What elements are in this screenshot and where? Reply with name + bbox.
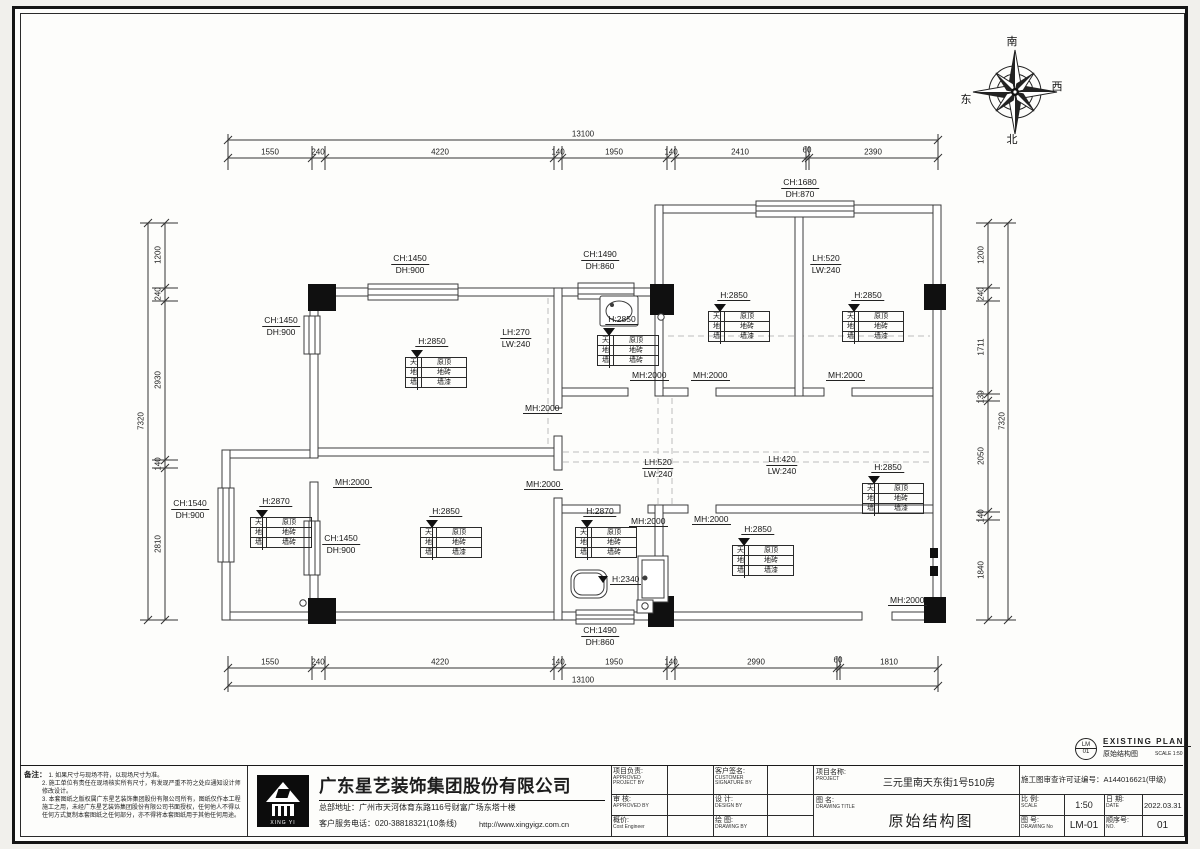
field-drawno-value: LM-01 <box>1064 815 1104 836</box>
pointer-triangle-icon <box>714 304 726 312</box>
stamp-title-en: EXISTING PLAN <box>1103 737 1191 747</box>
dimension-label: 1550 <box>261 148 279 157</box>
finish-table: 天原顶地地砖墙墙漆 <box>708 311 770 342</box>
room-height-label: H:2870 <box>583 506 616 517</box>
stamp-code-top: LM <box>1076 742 1096 749</box>
drawing-sheet: { "compass": {"south":"南","west":"西","ea… <box>0 0 1200 849</box>
field-cost-engineer: 概价: Cost Engineer <box>611 815 667 836</box>
field-date-value: 2022.03.31 <box>1142 794 1183 815</box>
existing-plan-stamp: LM 01 EXISTING PLAN 原始结构图 SCALE 1:50 <box>1075 735 1193 763</box>
field-project-manager: 项目负责: APPROVED PROJECT BY <box>611 766 667 794</box>
dimension-label: 1200 <box>154 246 163 264</box>
pointer-triangle-icon <box>848 304 860 312</box>
company-section: XING YI 广东星艺装饰集团股份有限公司 总部地址：广州市天河体育东路116… <box>247 766 611 836</box>
pointer-triangle-icon <box>581 520 593 528</box>
company-address: 总部地址：广州市天河体育东路116号财富广场东塔十楼 <box>319 802 516 813</box>
pointer-triangle-icon <box>598 576 608 583</box>
dimension-label: 240 <box>311 148 324 157</box>
room-finish-tag: H:2870天原顶地地砖墙墙砖 <box>250 517 312 548</box>
dimension-label: 1950 <box>605 148 623 157</box>
dimension-label: 1950 <box>605 658 623 667</box>
field-date-label: 日 期: DATE <box>1104 794 1142 815</box>
company-phone: 客户服务电话：020-38818321(10条线) <box>319 818 457 829</box>
door-height-label: MH:2000 <box>523 403 562 414</box>
pointer-triangle-icon <box>603 328 615 336</box>
field-drawing-title: 图 名: DRAWING TITLE 原始结构图 <box>813 794 1019 836</box>
dimension-label: 240 <box>311 658 324 667</box>
opening-size-label: LH:520LW:240 <box>810 253 841 276</box>
company-website: http://www.xingyigz.com.cn <box>479 820 569 829</box>
dimension-label: 1711 <box>977 338 986 355</box>
room-finish-tag: H:2850天原顶地地砖墙墙漆 <box>405 357 467 388</box>
plan-annotations: 1310015502404220140195014024106023901550… <box>0 0 1200 849</box>
dimension-label: 140 <box>551 658 564 667</box>
opening-size-label: CH:1490DH:860 <box>581 249 619 272</box>
room-height-label: H:2870 <box>259 496 292 507</box>
field-seq-label: 顺序号: NO. <box>1104 815 1142 836</box>
finish-table: 天原顶地地砖墙墙砖 <box>575 527 637 558</box>
dimension-label: 140 <box>154 457 163 470</box>
opening-size-label: CH:1450DH:900 <box>391 253 429 276</box>
field-drawing-by: 绘 图: DRAWING BY <box>713 815 767 836</box>
opening-size-label: CH:1450DH:900 <box>322 533 360 556</box>
room-finish-tag: H:2850天原顶地地砖墙墙漆 <box>732 545 794 576</box>
note-line-3: 3. 本套图纸之版权属广东星艺装饰集团股份有限公司所有，图纸仅作本工程施工之用，… <box>24 796 243 820</box>
room-height-label: H:2850 <box>605 314 638 325</box>
field-license: 施工图审查许可证编号：A144016621(甲级) <box>1019 766 1183 794</box>
opening-size-label: CH:1450DH:900 <box>262 315 300 338</box>
door-height-label: MH:2000 <box>333 477 372 488</box>
dimension-label: 4220 <box>431 658 449 667</box>
finish-table: 天原顶地地砖墙墙漆 <box>420 527 482 558</box>
dimension-label: 1840 <box>977 561 986 579</box>
note-line-2: 2. 施工单位有责任在现场核实所有尺寸，有发现严重不符之处应通知设计师修改设计。 <box>24 780 243 796</box>
opening-size-label: LH:420LW:240 <box>766 454 797 477</box>
door-height-label: MH:2000 <box>692 514 731 525</box>
dimension-label: 13100 <box>572 676 594 685</box>
room-finish-tag: H:2850天原顶地地砖墙墙漆 <box>862 483 924 514</box>
height-label: H:2340 <box>610 574 641 585</box>
room-height-label: H:2850 <box>741 524 774 535</box>
dimension-label: 1550 <box>261 658 279 667</box>
room-finish-tag: H:2850天原顶地地砖墙墙漆 <box>420 527 482 558</box>
dimension-label: 2050 <box>977 447 986 465</box>
opening-size-label: LH:520LW:240 <box>642 457 673 480</box>
field-drawno-label: 图 号: DRAWING No <box>1019 815 1064 836</box>
opening-size-label: CH:1490DH:860 <box>581 625 619 648</box>
finish-table: 天原顶地地砖墙墙漆 <box>732 545 794 576</box>
dimension-label: 4220 <box>431 148 449 157</box>
room-height-label: H:2850 <box>717 290 750 301</box>
dimension-label: 2810 <box>154 535 163 553</box>
dimension-label: 140 <box>551 148 564 157</box>
pointer-triangle-icon <box>256 510 268 518</box>
room-height-label: H:2850 <box>415 336 448 347</box>
field-checked-by: 审 核: APPROVED BY <box>611 794 667 815</box>
dimension-label: 240 <box>977 287 986 300</box>
dimension-label: 60 <box>803 146 812 155</box>
title-block: 备注： 1. 如果尺寸与现场不符，以现场尺寸为准。 2. 施工单位有责任在现场核… <box>20 765 1183 836</box>
room-finish-tag: H:2870天原顶地地砖墙墙砖 <box>575 527 637 558</box>
finish-table: 天原顶地地砖墙墙砖 <box>250 517 312 548</box>
dimension-label: 2930 <box>154 371 163 389</box>
opening-size-label: CH:1680DH:870 <box>781 177 819 200</box>
field-seq-value: 01 <box>1142 815 1183 836</box>
dimension-label: 140 <box>664 148 677 157</box>
field-project-name: 项目名称: PROJECT 三元里南天东街1号510房 <box>813 766 1019 794</box>
dimension-label: 140 <box>977 509 986 522</box>
dimension-label: 2990 <box>747 658 765 667</box>
project-name-value: 三元里南天东街1号510房 <box>861 774 1017 789</box>
door-height-label: MH:2000 <box>630 370 669 381</box>
finish-table: 天原顶地地砖墙墙漆 <box>862 483 924 514</box>
stamp-title-cn: 原始结构图 <box>1103 749 1138 759</box>
opening-size-label: LH:270LW:240 <box>500 327 531 350</box>
drawing-code-bubble: LM 01 <box>1075 738 1097 760</box>
drawing-title-value: 原始结构图 <box>853 810 1009 831</box>
stamp-code-bottom: 01 <box>1083 749 1090 755</box>
door-height-label: MH:2000 <box>888 595 927 606</box>
company-name: 广东星艺装饰集团股份有限公司 <box>319 773 605 801</box>
finish-table: 天原顶地地砖墙墙砖 <box>597 335 659 366</box>
finish-table: 天原顶地地砖墙墙漆 <box>842 311 904 342</box>
door-height-label: MH:2000 <box>524 479 563 490</box>
dimension-label: 240 <box>154 287 163 300</box>
door-height-label: MH:2000 <box>826 370 865 381</box>
pointer-triangle-icon <box>426 520 438 528</box>
room-finish-tag: H:2850天原顶地地砖墙墙漆 <box>708 311 770 342</box>
dimension-label: 1810 <box>880 658 898 667</box>
room-height-label: H:2850 <box>429 506 462 517</box>
dimension-label: 139 <box>977 390 986 403</box>
room-finish-tag: H:2850天原顶地地砖墙墙漆 <box>842 311 904 342</box>
door-height-label: MH:2000 <box>691 370 730 381</box>
company-logo-icon: XING YI <box>257 775 309 827</box>
pointer-triangle-icon <box>868 476 880 484</box>
room-finish-tag: H:2850天原顶地地砖墙墙砖 <box>597 335 659 366</box>
field-customer-signature: 客户签名: CUSTOMER SIGNATURE BY <box>713 766 767 794</box>
opening-size-label: CH:1540DH:900 <box>171 498 209 521</box>
dimension-label: 7320 <box>137 412 146 430</box>
room-height-label: H:2850 <box>871 462 904 473</box>
dimension-label: 60 <box>834 656 843 665</box>
dimension-label: 2410 <box>731 148 749 157</box>
field-design-by: 设 计: DESIGN BY <box>713 794 767 815</box>
notes-label: 备注： <box>24 770 47 779</box>
field-scale-label: 比 例: SCALE <box>1019 794 1064 815</box>
dimension-label: 2390 <box>864 148 882 157</box>
note-line-1: 1. 如果尺寸与现场不符，以现场尺寸为准。 <box>48 773 163 779</box>
finish-table: 天原顶地地砖墙墙漆 <box>405 357 467 388</box>
field-scale-value: 1:50 <box>1064 794 1104 815</box>
logo-text: XING YI <box>257 820 309 826</box>
dimension-label: 140 <box>664 658 677 667</box>
dimension-label: 7320 <box>998 412 1007 430</box>
pointer-triangle-icon <box>411 350 423 358</box>
door-height-label: MH:2000 <box>629 516 668 527</box>
dimension-label: 1200 <box>977 246 986 264</box>
pointer-triangle-icon <box>738 538 750 546</box>
room-height-label: H:2850 <box>851 290 884 301</box>
stamp-scale: SCALE 1:50 <box>1155 751 1183 757</box>
dimension-label: 13100 <box>572 130 594 139</box>
notes-section: 备注： 1. 如果尺寸与现场不符，以现场尺寸为准。 2. 施工单位有责任在现场核… <box>20 766 247 836</box>
